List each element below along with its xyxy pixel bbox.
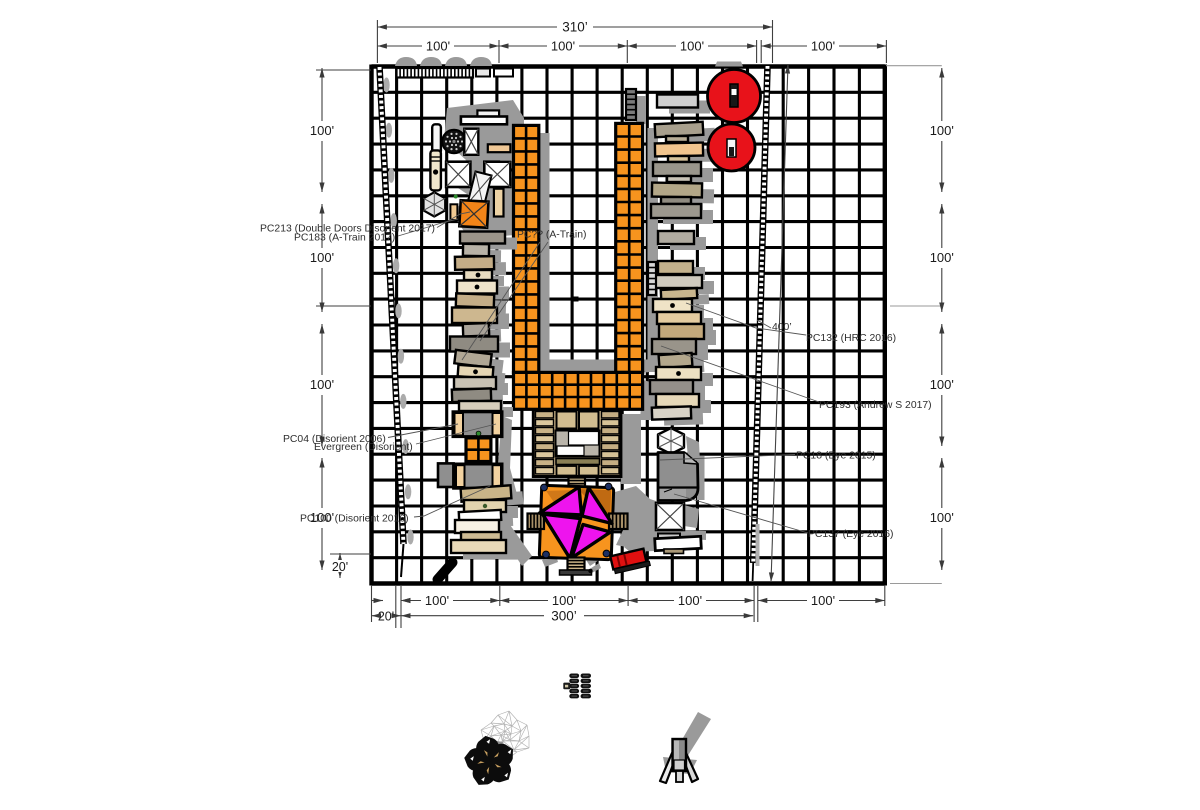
svg-text:100': 100' (310, 250, 334, 265)
svg-text:100': 100' (426, 39, 450, 54)
svg-text:100': 100' (680, 39, 704, 54)
svg-text:Evergreen (Disorient): Evergreen (Disorient) (314, 442, 413, 453)
svg-text:100': 100' (551, 39, 575, 54)
svg-text:PC?? (A-Train): PC?? (A-Train) (517, 230, 586, 241)
svg-text:100': 100' (552, 593, 576, 608)
svg-text:PC132 (HRC 2016): PC132 (HRC 2016) (806, 333, 896, 344)
svg-text:100': 100' (930, 123, 954, 138)
svg-text:20': 20' (378, 610, 394, 624)
svg-text:300’: 300’ (551, 609, 577, 624)
svg-text:100': 100' (930, 510, 954, 525)
svg-text:100': 100' (678, 593, 702, 608)
svg-text:100': 100' (930, 377, 954, 392)
svg-text:PC100 (Disorient 2016): PC100 (Disorient 2016) (300, 514, 409, 525)
svg-text:310’: 310’ (562, 20, 588, 35)
svg-text:100': 100' (425, 593, 449, 608)
svg-text:100': 100' (310, 123, 334, 138)
svg-text:400’: 400’ (772, 322, 792, 333)
svg-text:PC137 (Eye 2016): PC137 (Eye 2016) (808, 529, 893, 540)
svg-text:PC18 (Eye 2015): PC18 (Eye 2015) (796, 451, 876, 462)
svg-text:100': 100' (310, 377, 334, 392)
svg-text:20': 20' (332, 560, 348, 574)
svg-text:PC193 (Andrew S 2017): PC193 (Andrew S 2017) (819, 400, 932, 411)
svg-text:100': 100' (930, 250, 954, 265)
svg-text:100': 100' (811, 593, 835, 608)
svg-text:100': 100' (811, 39, 835, 54)
svg-text:PC183 (A-Train 2017): PC183 (A-Train 2017) (294, 233, 395, 244)
